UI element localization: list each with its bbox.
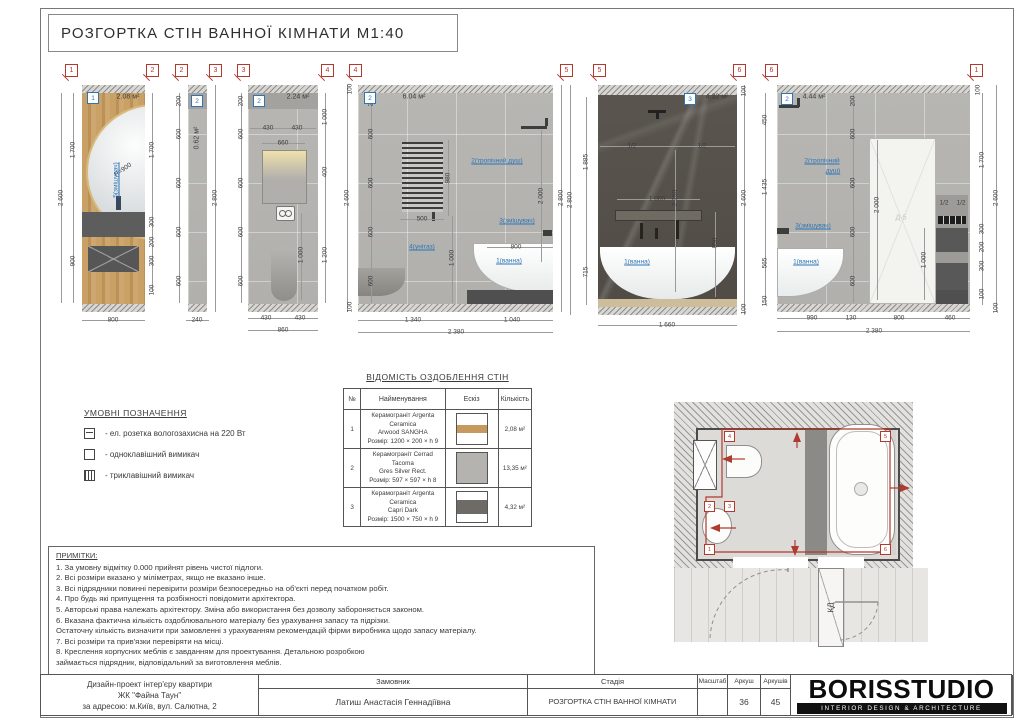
project-info-cell: Дизайн-проект інтер'єру квартири ЖК "Фай… (41, 675, 259, 715)
note-line: 4. Про будь які припущення та розбіжност… (56, 594, 587, 605)
floor-hatch (358, 304, 553, 312)
flush-plate (276, 206, 295, 221)
notes-box: ПРИМІТКИ: 1. За умовну відмітку 0.000 пр… (48, 546, 595, 677)
shower-head (521, 126, 547, 129)
scale-cell: Масштаб (698, 675, 728, 715)
ceiling-hatch (188, 85, 207, 93)
page-title: РОЗГОРТКА СТІН ВАННОЇ КІМНАТИ М1:40 (61, 25, 404, 42)
project-line: Дизайн-проект інтер'єру квартири (87, 679, 212, 690)
vanity-drawer (88, 246, 139, 272)
shelf-box (936, 263, 968, 290)
switch-one-icon (84, 449, 95, 460)
ceiling-hatch (82, 85, 145, 93)
note-line: 8. Креслення корпусних меблів є завдання… (56, 647, 587, 658)
floor-hatch (82, 304, 145, 312)
switch-socket-group (938, 216, 966, 224)
project-line: ЖК "Файна Таун" (118, 690, 181, 701)
wall-elevation-5 (598, 85, 737, 315)
cell-no: 1 (344, 410, 361, 449)
note-line: 1. За умовну відмітку 0.000 прийнят ріве… (56, 563, 587, 574)
finish-table: ВІДОМІСТЬ ОЗДОБЛЕННЯ СТІН № Найменування… (343, 372, 532, 527)
note-line: 6. Вказана фактична кількість оздоблювал… (56, 616, 587, 627)
legend-title: УМОВНІ ПОЗНАЧЕННЯ (84, 408, 246, 418)
wall-elevation-6 (777, 85, 970, 312)
note-line: Остаточну кількість визначити при замовл… (56, 626, 587, 637)
cell-name: Керамограніт Argenta Ceramica Capri Dark… (361, 488, 445, 527)
towel-radiator (402, 142, 443, 212)
niche (262, 150, 307, 204)
swatch-silver-tile (456, 452, 488, 484)
cell-qty: 13,35 м² (498, 449, 531, 488)
wall-elevation-3 (248, 85, 318, 312)
swatch-dark-tile (456, 491, 488, 523)
cell-no: 3 (344, 488, 361, 527)
cell-qty: 2,08 м² (498, 410, 531, 449)
col-header-sketch: Ескіз (445, 389, 498, 410)
material-name: Керамограніт Cerrad Tacoma (363, 451, 442, 468)
shower-arm (797, 98, 800, 107)
note-line: 2. Всі розміри вказано у міліметрах, якщ… (56, 573, 587, 584)
notes-title: ПРИМІТКИ: (56, 551, 587, 562)
col-header-name: Найменування (361, 389, 445, 410)
material-name: Керамограніт Argenta Ceramica (363, 412, 442, 429)
table-row: 1 Керамограніт Argenta Ceramica Arwood S… (344, 410, 532, 449)
floor-hatch (777, 304, 970, 312)
plan-view-marker: 3 (724, 501, 735, 512)
shelf (615, 210, 702, 221)
legend-item-label: - ел. розетка вологозахисна на 220 Вт (105, 429, 246, 438)
floor-hatch (248, 304, 318, 312)
notes-lines: 1. За умовну відмітку 0.000 прийнят ріве… (56, 563, 587, 669)
bathtub (473, 243, 553, 292)
floor-plan: КД 456123 (660, 390, 960, 660)
material-name: Arwood SANGHA (363, 429, 442, 438)
note-line: 5. Авторські права належать архітектору.… (56, 605, 587, 616)
plan-view-marker: 5 (880, 431, 891, 442)
shelf-box (936, 228, 968, 252)
vanity-counter (82, 212, 145, 237)
material-size: Розмір: 1500 × 750 × h 9 (363, 516, 442, 525)
table-header-row: № Найменування Ескіз Кількість (344, 389, 532, 410)
client-label: Замовник (259, 675, 527, 689)
wall-elevation-4 (358, 85, 553, 312)
sheets-label: Аркушів (761, 675, 790, 689)
faucet (640, 223, 643, 239)
plan-annotations (660, 390, 960, 660)
door-tag: Д-5 (896, 215, 907, 222)
swatch-wood-plank (456, 413, 488, 445)
skirting-strip (598, 299, 737, 307)
plan-view-marker: 6 (880, 544, 891, 555)
cell-sketch (445, 488, 498, 527)
note-line: займається підрядник, відповідальний за … (56, 658, 587, 669)
material-name: Gres Silver Rect. (363, 468, 442, 477)
material-name: Керамограніт Argenta Ceramica (363, 490, 442, 507)
title-block: Дизайн-проект інтер'єру квартири ЖК "Фай… (40, 674, 1012, 716)
material-size: Розмір: 1200 × 200 × h 9 (363, 438, 442, 447)
shower-arm (545, 118, 548, 126)
faucet (655, 228, 658, 239)
material-name: Capri Dark (363, 507, 442, 516)
shower-arm (656, 113, 659, 119)
note-line: 3. Всі підрядники повинні перевірити роз… (56, 584, 587, 595)
cabinet-plinth (936, 290, 968, 304)
toilet (358, 268, 405, 296)
plan-view-marker: 4 (724, 431, 735, 442)
sheet-number: 36 (728, 688, 760, 715)
bath-plinth (467, 290, 553, 304)
mixer-tap (777, 228, 789, 234)
floor-hatch (188, 304, 207, 312)
switch-three-icon (84, 470, 95, 481)
legend-item-label: - одноклавішний вимикач (105, 450, 199, 459)
finish-table-title: ВІДОМІСТЬ ОЗДОБЛЕННЯ СТІН (343, 372, 532, 382)
wall-elevation-1 (82, 85, 145, 312)
legend-item-label: - триклавішний вимикач (105, 471, 194, 480)
radiator-pipe (432, 212, 435, 221)
cell-sketch (445, 449, 498, 488)
legend: УМОВНІ ПОЗНАЧЕННЯ - ел. розетка вологоза… (84, 408, 246, 491)
material-size: Розмір: 597 × 597 × h 8 (363, 477, 442, 486)
sheets-total-cell: Аркушів 45 (761, 675, 791, 715)
table-row: 2 Керамограніт Cerrad Tacoma Gres Silver… (344, 449, 532, 488)
client-value: Латиш Анастасія Геннадіївна (259, 688, 527, 715)
stage-label: Стадія (528, 675, 697, 689)
floor-hatch (598, 307, 737, 315)
drawing-sheet: РОЗГОРТКА СТІН ВАННОЇ КІМНАТИ М1:40 (0, 0, 1024, 724)
toilet (271, 247, 297, 301)
studio-logo: BORISSTUDIO (808, 676, 994, 702)
cell-name: Керамограніт Cerrad Tacoma Gres Silver R… (361, 449, 445, 488)
studio-tagline: INTERIOR DESIGN & ARCHITECTURE (797, 703, 1007, 714)
legend-item: - ел. розетка вологозахисна на 220 Вт (84, 428, 246, 439)
cell-qty: 4,32 м² (498, 488, 531, 527)
legend-item: - одноклавішний вимикач (84, 449, 246, 460)
stage-cell: Стадія РОЗГОРТКА СТІН ВАННОЇ КІМНАТИ (528, 675, 698, 715)
legend-item: - триклавішний вимикач (84, 470, 246, 481)
bathtub (777, 248, 844, 297)
client-cell: Замовник Латиш Анастасія Геннадіївна (259, 675, 528, 715)
wall-elevation-2 (188, 85, 207, 312)
cell-no: 2 (344, 449, 361, 488)
col-header-qty: Кількість (498, 389, 531, 410)
table-row: 3 Керамограніт Argenta Ceramica Capri Da… (344, 488, 532, 527)
socket-icon (84, 428, 95, 439)
bathtub (600, 247, 735, 299)
studio-logo-cell: BORISSTUDIO INTERIOR DESIGN & ARCHITECTU… (791, 675, 1013, 715)
mixer-tap (543, 230, 552, 236)
cell-sketch (445, 410, 498, 449)
plan-view-marker: 1 (704, 544, 715, 555)
col-header-no: № (344, 389, 361, 410)
sheets-total: 45 (761, 688, 790, 715)
scale-label: Масштаб (698, 675, 727, 689)
faucet (676, 220, 679, 239)
top-tile-band (248, 93, 318, 109)
sheet-label: Аркуш (728, 675, 760, 689)
cell-name: Керамограніт Argenta Ceramica Arwood SAN… (361, 410, 445, 449)
sheet-number-cell: Аркуш 36 (728, 675, 761, 715)
sheet-title-box: РОЗГОРТКА СТІН ВАННОЇ КІМНАТИ М1:40 (48, 14, 458, 52)
ceiling-hatch (248, 85, 318, 93)
ceiling-hatch (358, 85, 553, 93)
ceiling-hatch (598, 85, 737, 95)
ceiling-hatch (777, 85, 970, 93)
plan-view-marker: 2 (704, 501, 715, 512)
project-line: за адресою: м.Київ, вул. Салютна, 2 (82, 701, 216, 712)
top-tile-band (188, 93, 207, 109)
scale-value (698, 688, 727, 715)
stage-value: РОЗГОРТКА СТІН ВАННОЇ КІМНАТИ (528, 688, 697, 715)
mixer-tap (116, 196, 121, 210)
note-line: 7. Всі розміри та прив'язки перевіряти н… (56, 637, 587, 648)
shower-head (779, 105, 799, 108)
